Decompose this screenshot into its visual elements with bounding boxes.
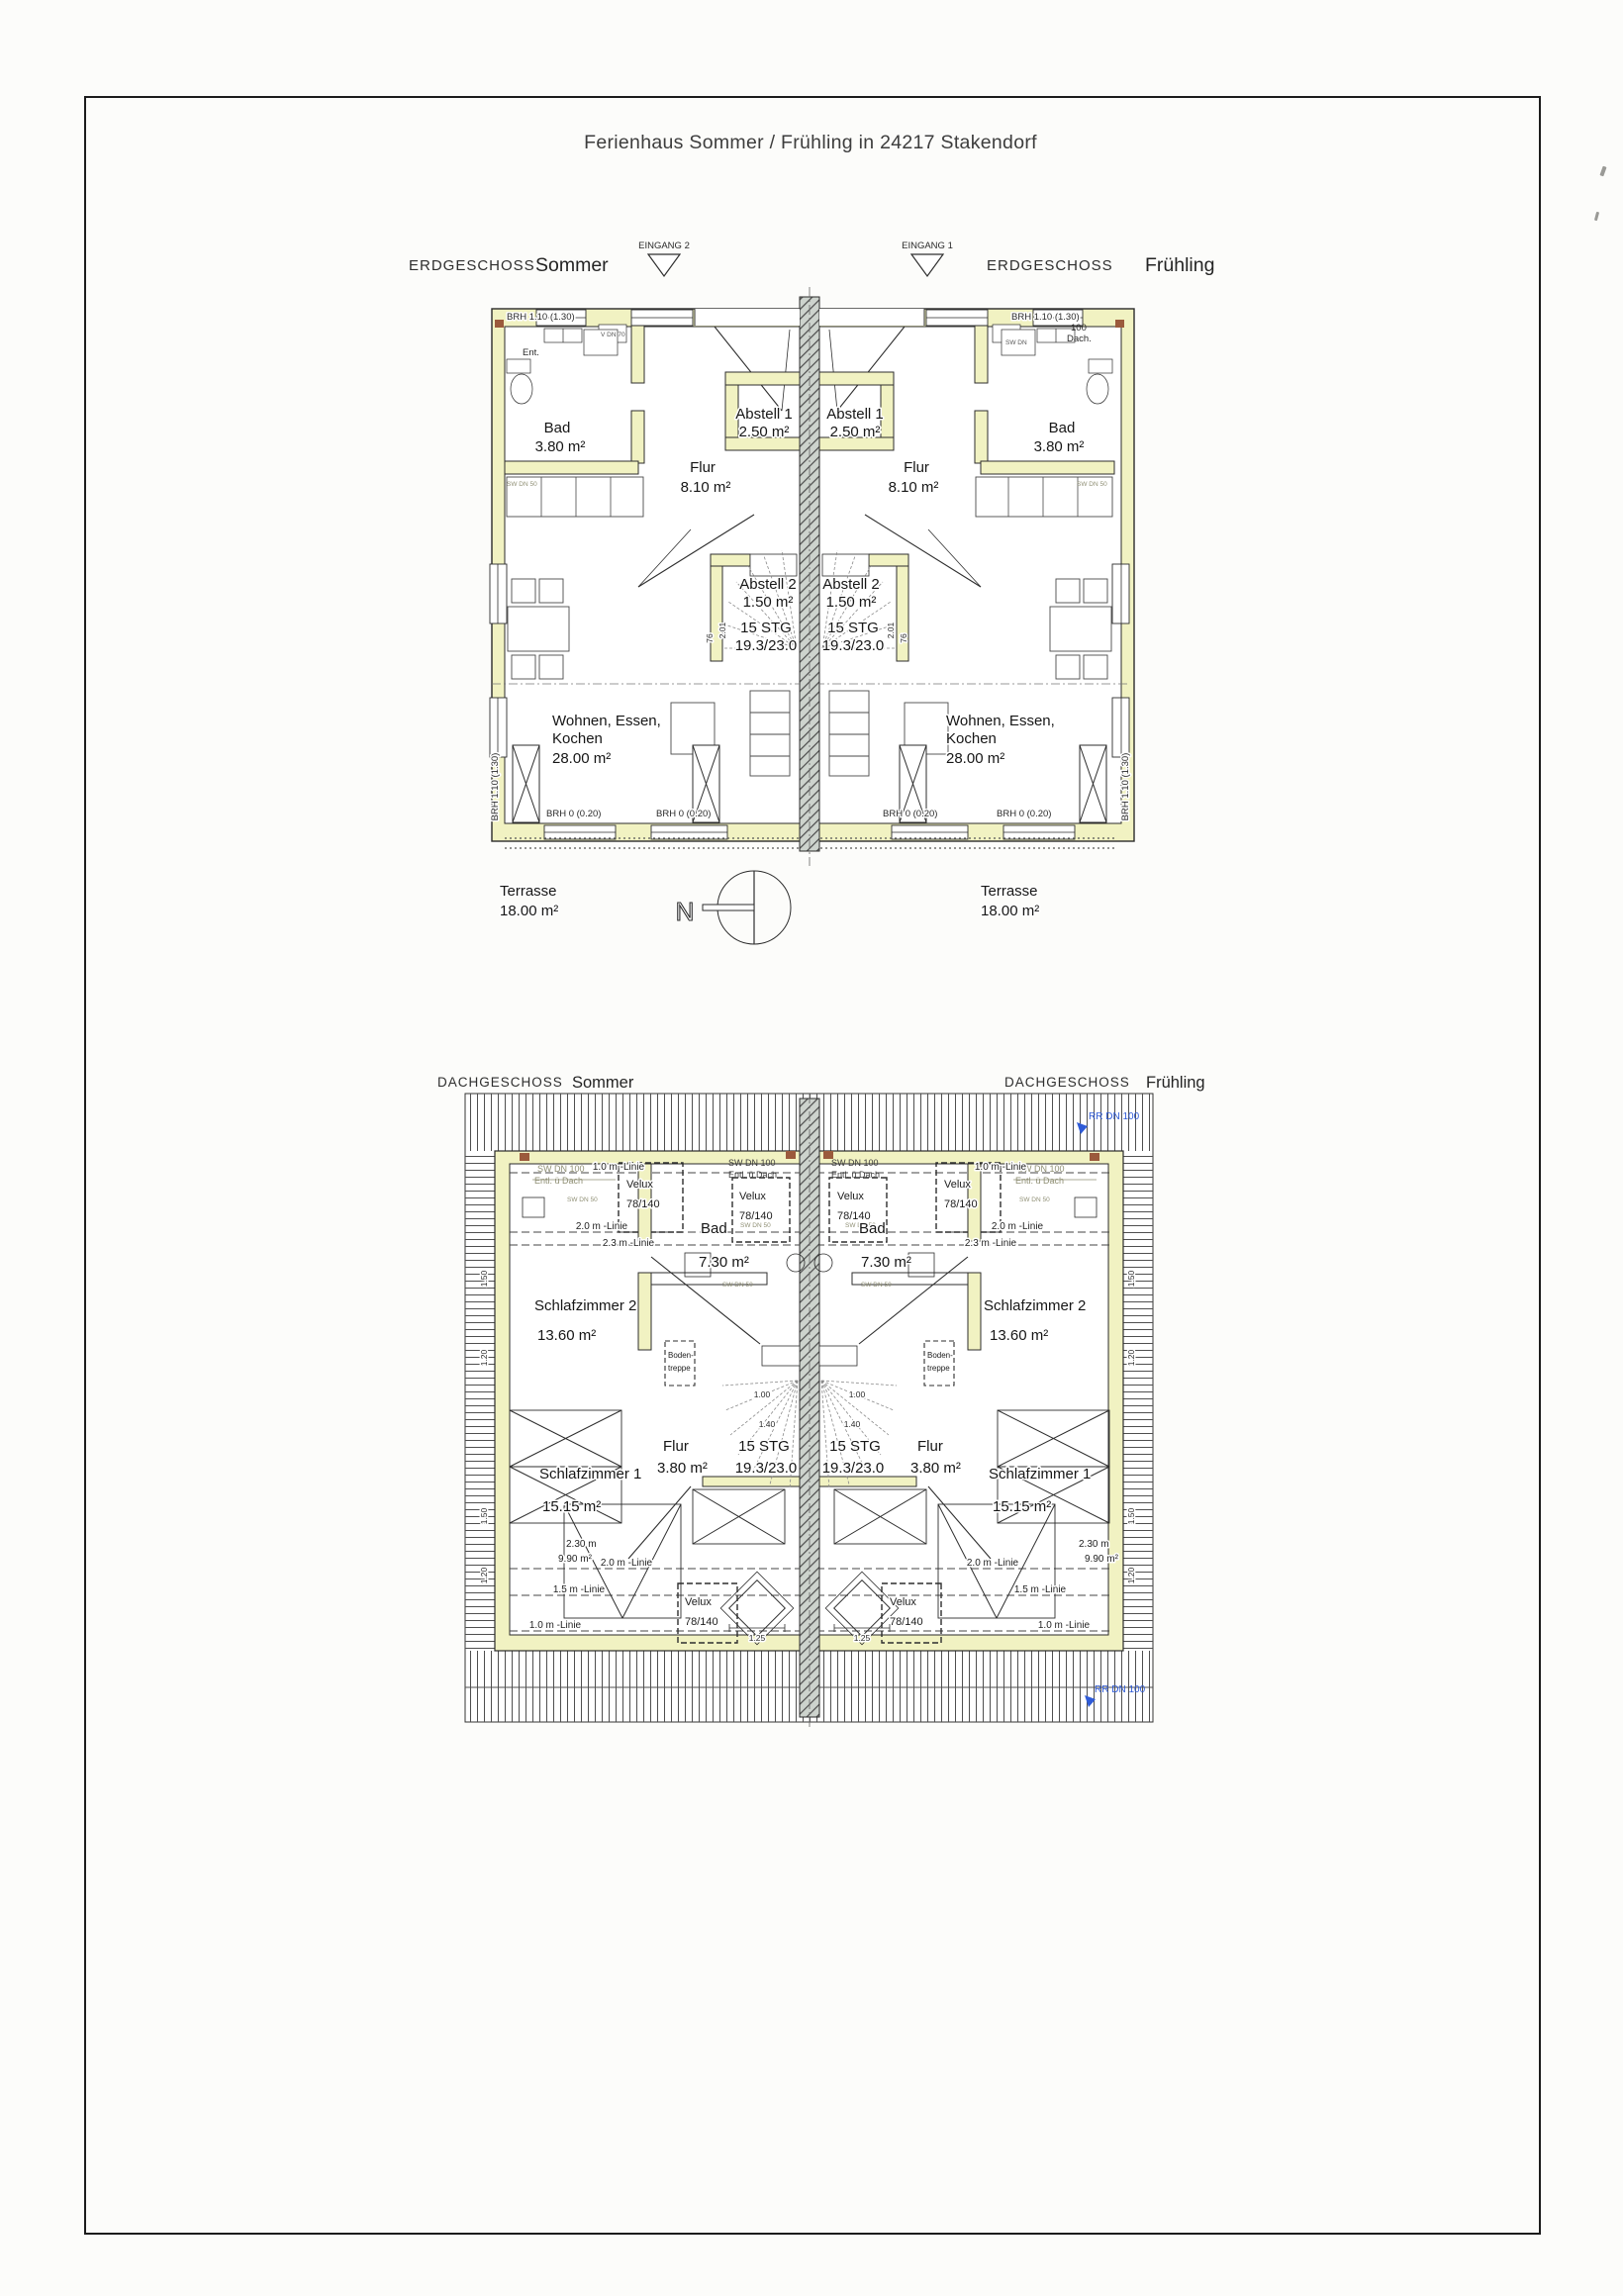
- dg-rr-note-top: RR DN 100: [1089, 1111, 1140, 1122]
- eg-dim-76-left: 76: [705, 633, 715, 643]
- dg-linie20-topleft: 2.0 m -Linie: [576, 1221, 628, 1232]
- eg-bad-label-left: Bad: [544, 420, 571, 436]
- eg-dach-note-right: Dach.: [1067, 334, 1092, 344]
- eg-wohnen-line2-left: Kochen: [552, 730, 603, 747]
- dg-schlafzimmer1-area-right: 15.15 m²: [993, 1498, 1051, 1515]
- eg-abstell2-label-right: Abstell 2: [822, 576, 880, 593]
- dg-schlafzimmer2-area-left: 13.60 m²: [537, 1327, 596, 1344]
- eg-brh-bottom-1: BRH 0 (0.20): [546, 809, 601, 819]
- dg-linie23-left: 2.3 m -Linie: [603, 1238, 655, 1249]
- eg-brh-top-right: BRH 1.10 (1.30): [1011, 312, 1080, 323]
- dg-swdn100-topleft: SW DN 100: [537, 1164, 585, 1174]
- dg-velux6-l2: 78/140: [890, 1616, 923, 1628]
- erdgeschoss-plan: ERDGESCHOSS Sommer ERDGESCHOSS Frühling …: [396, 233, 1287, 960]
- eg-stg-line2-right: 19.3/23.0: [822, 637, 885, 654]
- dg-velux1-l1: Velux: [626, 1179, 653, 1191]
- eg-abstell1-area-right: 2.50 m²: [830, 424, 881, 440]
- eg-stg-line2-left: 19.3/23.0: [735, 637, 798, 654]
- eingang1-triangle-icon: [911, 254, 943, 276]
- dg-schlafzimmer1-label-left: Schlafzimmer 1: [539, 1466, 641, 1483]
- dg-dim100-right: 1.00: [849, 1389, 866, 1399]
- scan-artifact: [1594, 212, 1599, 221]
- eg-eingang1-label: EINGANG 1: [902, 240, 953, 251]
- eg-abstell1-label-left: Abstell 1: [735, 406, 793, 423]
- dg-entl-centerright: Entl. ü Dach: [831, 1170, 880, 1180]
- dg-linie10-bottomright: 1.0 m -Linie: [1038, 1620, 1091, 1631]
- eingang2-triangle-icon: [648, 254, 680, 276]
- dg-linie10-topright: 1.0 m -Linie: [975, 1162, 1027, 1173]
- dg-linie10-bottomleft: 1.0 m -Linie: [529, 1620, 582, 1631]
- dg-entl-topleft: Entl. ü Dach: [534, 1176, 583, 1186]
- dg-bad-area-left: 7.30 m²: [699, 1254, 749, 1271]
- dg-dim120-bottomleft: 1.20: [479, 1567, 489, 1583]
- eg-wohnen-area-right: 28.00 m²: [946, 750, 1004, 767]
- eg-bad-area-right: 3.80 m²: [1034, 438, 1085, 455]
- dg-velux6-l1: Velux: [890, 1596, 916, 1608]
- scanned-floorplan-page: Ferienhaus Sommer / Frühling in 24217 St…: [0, 0, 1623, 2296]
- dg-flur-area-right: 3.80 m²: [910, 1460, 961, 1477]
- eg-vdn-note: V DN 70: [601, 332, 625, 338]
- dg-swdn100-centerright: SW DN 100: [831, 1158, 879, 1168]
- eg-wohnen-line1-left: Wohnen, Essen,: [552, 713, 661, 729]
- eg-brh-bottom-2: BRH 0 (0.20): [656, 809, 711, 819]
- eg-terrasse-label-left: Terrasse: [500, 883, 557, 900]
- eg-abstell2-area-left: 1.50 m²: [743, 594, 794, 611]
- dg-heading-left-name: Sommer: [572, 1074, 634, 1092]
- dg-dim140-left: 1.40: [759, 1419, 776, 1429]
- dg-velux1-l2: 78/140: [626, 1198, 660, 1210]
- eg-ent-note: Ent.: [523, 347, 539, 358]
- dg-bodentreppe-l1-left: Boden-: [668, 1351, 694, 1360]
- eg-abstell2-area-right: 1.50 m²: [826, 594, 877, 611]
- eg-dim-76-right: 76: [899, 633, 908, 643]
- dg-linie10-topleft: 1.0 m -Linie: [593, 1162, 645, 1173]
- dg-flur-area-left: 3.80 m²: [657, 1460, 708, 1477]
- eg-dim-201-left: 2.01: [717, 622, 727, 638]
- dg-swdn50-1: SW DN 50: [567, 1196, 598, 1203]
- eg-brh-side-left: BRH 1.10 (1.30): [490, 753, 501, 821]
- dg-dim125-left: 1.25: [749, 1633, 766, 1643]
- dg-dim150-topleft: 1.50: [479, 1270, 489, 1287]
- eg-flur-area-right: 8.10 m²: [889, 479, 939, 496]
- compass-north-label: N: [676, 897, 695, 926]
- dg-linie15-right: 1.5 m -Linie: [1014, 1584, 1067, 1595]
- eg-stg-line1-right: 15 STG: [827, 620, 879, 636]
- dg-entl-topright: Entl. ü Dach: [1015, 1176, 1064, 1186]
- dg-schlafzimmer1-area-left: 15.15 m²: [542, 1498, 601, 1515]
- dg-dim120-bottomright: 1.20: [1126, 1567, 1136, 1583]
- eg-brh-bottom-3: BRH 0 (0.20): [883, 809, 937, 819]
- dg-bad-area-right: 7.30 m²: [861, 1254, 911, 1271]
- dg-dim990-left: 9.90 m²: [558, 1554, 593, 1565]
- eg-heading-right-type: ERDGESCHOSS: [987, 257, 1113, 274]
- dg-heading-left-type: DACHGESCHOSS: [437, 1075, 563, 1090]
- dg-dim990-right: 9.90 m²: [1085, 1554, 1119, 1565]
- dg-velux2-l2: 78/140: [739, 1210, 773, 1222]
- dg-flur-label-left: Flur: [663, 1438, 689, 1455]
- eg-heading-right-name: Frühling: [1145, 254, 1214, 276]
- dg-stg-line2-right: 19.3/23.0: [822, 1460, 885, 1477]
- dg-velux3-l1: Velux: [944, 1179, 971, 1191]
- eg-bad-label-right: Bad: [1049, 420, 1076, 436]
- dg-bodentreppe-l2-right: treppe: [927, 1364, 950, 1373]
- dg-swdn50-4: SW DN 50: [1019, 1196, 1050, 1203]
- dg-velux4-l1: Velux: [837, 1191, 864, 1202]
- eg-swdn-box-right: SW DN: [1005, 339, 1027, 346]
- eg-abstell1-area-left: 2.50 m²: [739, 424, 790, 440]
- dg-dim120-topleft: 1.20: [479, 1349, 489, 1366]
- dg-swdn100-centerleft: SW DN 100: [728, 1158, 776, 1168]
- dg-linie15-left: 1.5 m -Linie: [553, 1584, 606, 1595]
- dg-bad-label-left: Bad: [701, 1220, 727, 1237]
- dg-flur-label-right: Flur: [917, 1438, 943, 1455]
- eg-heading-left-type: ERDGESCHOSS: [409, 257, 535, 274]
- eg-wohnen-area-left: 28.00 m²: [552, 750, 611, 767]
- dg-dim125-right: 1.25: [854, 1633, 871, 1643]
- dg-velux2-l1: Velux: [739, 1191, 766, 1202]
- dg-entl-centerleft: Entl. ü Dach: [728, 1170, 777, 1180]
- dg-velux5-l1: Velux: [685, 1596, 712, 1608]
- dachgeschoss-plan: DACHGESCHOSS Sommer DACHGESCHOSS Frühlin…: [426, 1049, 1237, 1762]
- eg-abstell2-label-left: Abstell 2: [739, 576, 797, 593]
- dg-dim150-topright: 1.50: [1126, 1270, 1136, 1287]
- dg-dim230-left: 2.30 m: [566, 1539, 597, 1550]
- eg-dim-201-right: 2.01: [886, 622, 896, 638]
- dg-velux3-l2: 78/140: [944, 1198, 978, 1210]
- eg-flur-label-left: Flur: [690, 459, 716, 476]
- eg-wohnen-line2-right: Kochen: [946, 730, 997, 747]
- eg-abstell1-label-right: Abstell 1: [826, 406, 884, 423]
- dg-stg-line2-left: 19.3/23.0: [735, 1460, 798, 1477]
- dg-stg-line1-left: 15 STG: [738, 1438, 790, 1455]
- dg-linie20-bottomright: 2.0 m -Linie: [967, 1558, 1019, 1569]
- dg-linie20-topright: 2.0 m -Linie: [992, 1221, 1044, 1232]
- dg-swdn50-6: SW DN 50: [861, 1282, 892, 1289]
- eg-eingang2-label: EINGANG 2: [638, 240, 690, 251]
- page-title: Ferienhaus Sommer / Frühling in 24217 St…: [84, 132, 1537, 154]
- eg-flur-area-left: 8.10 m²: [681, 479, 731, 496]
- dg-bad-label-right: Bad: [859, 1220, 886, 1237]
- dg-heading-right-name: Frühling: [1146, 1074, 1205, 1092]
- eg-100-note-right: 100: [1071, 323, 1087, 334]
- scan-artifact: [1599, 166, 1606, 177]
- eg-stg-line1-left: 15 STG: [740, 620, 792, 636]
- eg-wohnen-line1-right: Wohnen, Essen,: [946, 713, 1055, 729]
- eg-brh-side-right: BRH 1.10 (1.30): [1120, 753, 1131, 821]
- eg-brh-top-left: BRH 1.10 (1.30): [507, 312, 575, 323]
- dg-dim150-bottomleft: 1.50: [479, 1507, 489, 1524]
- dg-dim150-bottomright: 1.50: [1126, 1507, 1136, 1524]
- dg-dim230-right: 2.30 m: [1079, 1539, 1109, 1550]
- compass-icon: N: [676, 871, 791, 944]
- eg-terrasse-area-left: 18.00 m²: [500, 903, 558, 919]
- eg-swdn50-right: SW DN 50: [1077, 481, 1107, 488]
- eg-swdn50-left: SW DN 50: [507, 481, 537, 488]
- dg-schlafzimmer2-label-left: Schlafzimmer 2: [534, 1297, 636, 1314]
- dg-dim120-topright: 1.20: [1126, 1349, 1136, 1366]
- dg-schlafzimmer2-area-right: 13.60 m²: [990, 1327, 1048, 1344]
- eg-terrasse-label-right: Terrasse: [981, 883, 1038, 900]
- eg-flur-label-right: Flur: [904, 459, 929, 476]
- dg-rr-note-bottom: RR DN 100: [1095, 1684, 1146, 1695]
- dg-velux5-l2: 78/140: [685, 1616, 718, 1628]
- dg-linie20-bottomleft: 2.0 m -Linie: [601, 1558, 653, 1569]
- dg-heading-right-type: DACHGESCHOSS: [1004, 1075, 1130, 1090]
- dg-bodentreppe-l1-right: Boden-: [927, 1351, 953, 1360]
- dg-schlafzimmer1-label-right: Schlafzimmer 1: [989, 1466, 1091, 1483]
- dg-swdn50-2: SW DN 50: [740, 1222, 771, 1229]
- dg-dim100-left: 1.00: [754, 1389, 771, 1399]
- eg-heading-left-name: Sommer: [535, 254, 609, 276]
- dg-bodentreppe-l2-left: treppe: [668, 1364, 691, 1373]
- dg-dim140-right: 1.40: [844, 1419, 861, 1429]
- dg-linie23-right: 2.3 m -Linie: [965, 1238, 1017, 1249]
- dg-swdn50-5: SW DN 50: [722, 1282, 753, 1289]
- dg-schlafzimmer2-label-right: Schlafzimmer 2: [984, 1297, 1086, 1314]
- dg-stg-line1-right: 15 STG: [829, 1438, 881, 1455]
- eg-bad-area-left: 3.80 m²: [535, 438, 586, 455]
- eg-brh-bottom-4: BRH 0 (0.20): [997, 809, 1051, 819]
- eg-terrasse-area-right: 18.00 m²: [981, 903, 1039, 919]
